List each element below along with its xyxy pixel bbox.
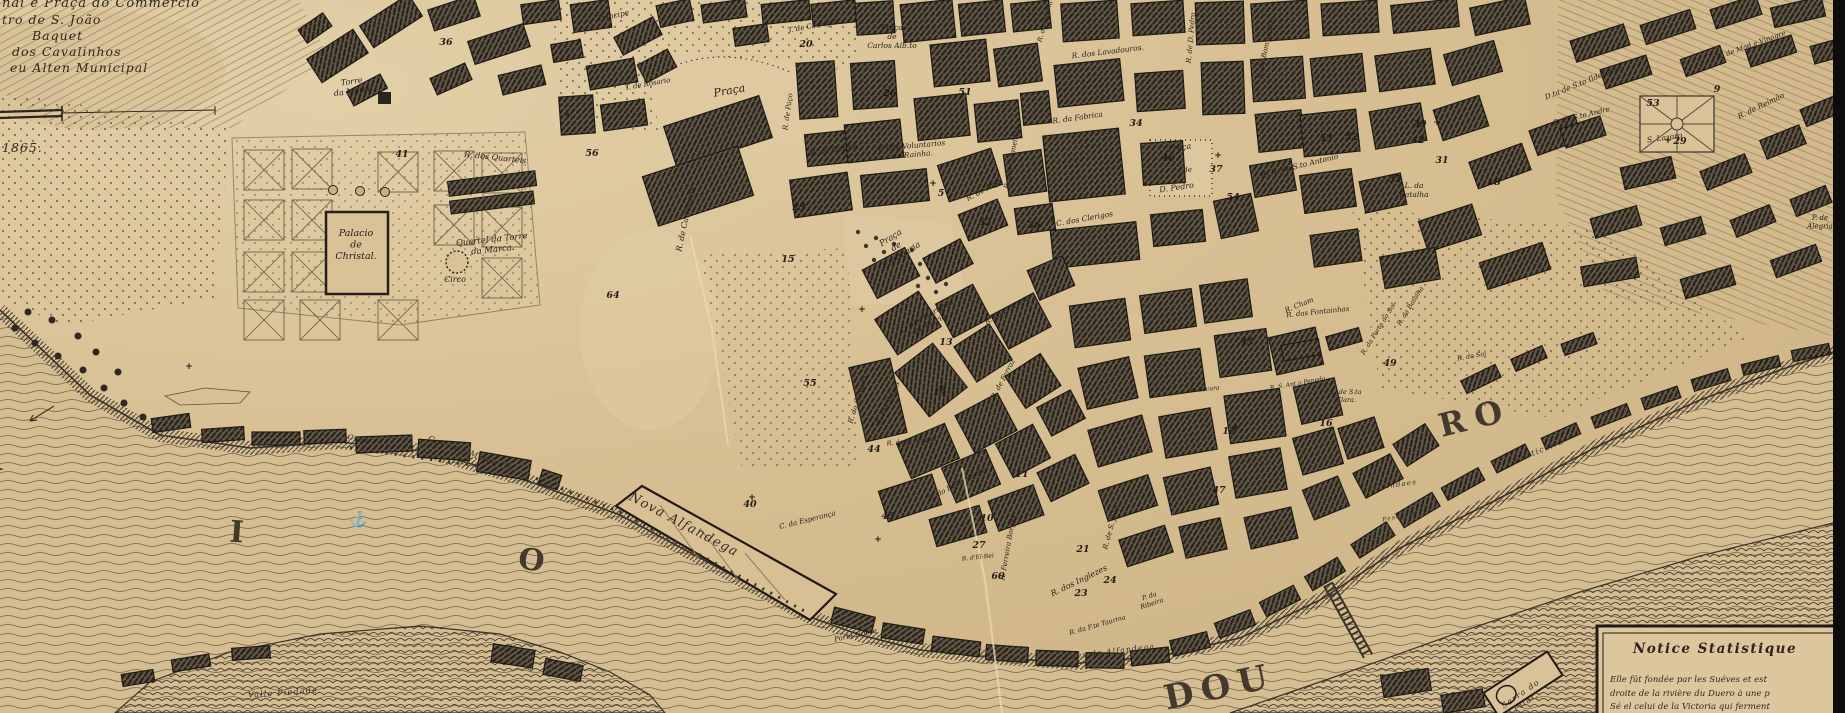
garden-pond	[356, 187, 365, 196]
block-number: 41	[395, 149, 408, 160]
city-block	[202, 427, 245, 443]
city-block	[1054, 59, 1124, 108]
church-cross-icon: +	[1433, 118, 1441, 128]
church-cross-icon: +	[564, 111, 572, 121]
church-cross-icon: +	[858, 305, 866, 315]
tree-blob	[93, 349, 100, 356]
city-block	[252, 432, 300, 445]
historic-map-of-porto: ++++++++++++ RIODOURO⚓ Torreda MarcaPala…	[0, 0, 1845, 713]
city-block	[1375, 48, 1435, 91]
tree-dot	[926, 276, 930, 280]
city-block	[1310, 53, 1366, 96]
block-number: 42	[1411, 135, 1425, 146]
torre-da-marca-building	[378, 92, 391, 104]
block-number: 51	[958, 87, 971, 98]
block-number: 54	[1226, 192, 1239, 203]
block-number: 11	[1015, 469, 1028, 480]
city-block	[861, 169, 930, 208]
notice-line: Sé el celui de la Victoria qui ferment	[1610, 701, 1770, 712]
river-name-letter: I	[228, 515, 244, 551]
map-year: 1865.	[2, 140, 43, 155]
city-block	[1214, 329, 1271, 378]
tree-blob	[80, 367, 87, 374]
block-number: 55	[803, 378, 817, 389]
tree-dot	[916, 284, 920, 288]
city-block	[986, 645, 1029, 663]
city-block	[796, 61, 838, 120]
city-block	[1069, 298, 1130, 347]
city-block	[1200, 279, 1253, 323]
block-number: 46	[1161, 153, 1175, 164]
block-number: 27	[971, 540, 986, 551]
tree-dot	[872, 258, 876, 262]
block-number: 35	[1388, 174, 1402, 185]
city-block	[1310, 229, 1362, 267]
city-block	[1229, 448, 1288, 498]
garden-pond	[381, 188, 390, 197]
tree-dot	[944, 282, 948, 286]
city-block	[1020, 91, 1051, 126]
city-block	[1195, 1, 1244, 45]
city-block	[1131, 0, 1185, 36]
block-number: 64	[606, 290, 619, 301]
tree-blob	[12, 325, 19, 332]
tree-dot	[934, 290, 938, 294]
city-block	[994, 43, 1043, 87]
block-number: 49	[1383, 358, 1397, 369]
city-block	[761, 0, 811, 24]
legend-line: eu Alten Municipal	[10, 60, 148, 75]
block-number: 43	[881, 511, 895, 522]
notice-line: Elle fût fondée par les Suéves et est	[1609, 674, 1768, 685]
legend-line: tro de S. João	[2, 12, 101, 27]
block-number: 60	[991, 571, 1005, 582]
city-block	[930, 39, 990, 87]
tree-blob	[55, 353, 62, 360]
tree-blob	[25, 309, 32, 316]
city-block	[304, 429, 346, 443]
city-block	[1061, 0, 1120, 42]
city-block	[1043, 128, 1125, 202]
tree-blob	[140, 414, 147, 421]
block-number: 5	[938, 188, 945, 199]
block-number: 37	[1209, 164, 1223, 175]
garden-pond	[329, 186, 338, 195]
city-block	[958, 0, 1005, 36]
tree-blob	[121, 400, 128, 407]
block-number: 18	[1487, 177, 1501, 188]
block-number: 23	[791, 202, 806, 213]
notice-line: droite de la rivière du Duero à une p	[1610, 688, 1770, 699]
scan-edge-strip	[1833, 0, 1845, 713]
block-number: 53	[1319, 133, 1333, 144]
tree-dot	[874, 236, 878, 240]
block-number: 39	[1413, 119, 1427, 130]
block-number: 10	[980, 513, 994, 524]
tree-dot	[882, 250, 886, 254]
block-number: 53	[1646, 98, 1660, 109]
block-number: 14	[933, 387, 946, 398]
legend-line: dos Cavalinhos	[12, 44, 121, 59]
block-number: 52	[978, 217, 992, 228]
map-canvas: ++++++++++++ RIODOURO⚓ Torreda MarcaPala…	[0, 0, 1845, 713]
tree-dot	[864, 244, 868, 248]
city-block	[1159, 408, 1218, 458]
city-block	[733, 24, 769, 47]
city-block	[850, 61, 897, 110]
city-block	[914, 93, 970, 140]
block-number: 9	[1714, 84, 1721, 95]
tree-blob	[101, 385, 108, 392]
city-block	[1201, 61, 1245, 114]
city-block	[900, 0, 956, 43]
church-cross-icon: +	[929, 179, 937, 189]
legend-line: Baquet	[31, 28, 83, 43]
city-block	[1321, 0, 1379, 36]
city-block	[1140, 289, 1197, 334]
map-label: Circo	[444, 275, 466, 284]
church-cross-icon: +	[185, 362, 193, 372]
block-number: 15	[781, 254, 795, 265]
tree-blob	[115, 369, 122, 376]
tree-blob	[49, 317, 56, 324]
block-number: 26	[882, 88, 897, 99]
river-name-letter: O	[516, 541, 547, 579]
block-number: 47	[1212, 485, 1226, 496]
city-block	[1255, 110, 1305, 153]
block-number: 21	[1075, 544, 1089, 555]
city-block	[1300, 169, 1357, 214]
block-number: 44	[867, 444, 880, 455]
block-number: 34	[1129, 118, 1142, 129]
block-number: 16	[1319, 418, 1333, 429]
church-cross-icon: +	[874, 535, 882, 545]
tree-dot	[856, 230, 860, 234]
block-number: 24	[1102, 575, 1116, 586]
tree-blob	[32, 340, 39, 347]
notice-title: Notice Statistique	[1632, 641, 1797, 657]
block-number: 56	[585, 148, 599, 159]
block-number: 36	[1027, 220, 1041, 231]
block-number: 12	[1222, 426, 1236, 437]
block-number: 40	[743, 499, 757, 510]
notice-statistique-box: Notice Statistique Elle fût fondée par l…	[1597, 626, 1845, 713]
block-number: 52	[1345, 132, 1359, 143]
block-number: 13	[939, 337, 953, 348]
block-number: 36	[439, 37, 453, 48]
city-block	[1251, 0, 1310, 42]
circo-ring	[446, 251, 468, 273]
anchor-icon: ⚓	[348, 508, 370, 529]
map-label: de	[1183, 165, 1193, 174]
city-block	[600, 99, 647, 131]
city-block	[1150, 209, 1205, 246]
church-cross-icon: +	[1214, 151, 1222, 161]
tree-dot	[918, 262, 922, 266]
city-block	[1135, 70, 1186, 111]
block-number: 20	[798, 39, 813, 50]
block-number: 31	[1435, 155, 1448, 166]
tree-blob	[75, 333, 82, 340]
city-block	[232, 646, 271, 661]
block-number: 23	[1073, 588, 1088, 599]
block-number: 29	[1672, 136, 1687, 147]
legend-line: nal e Praça do Commercio	[2, 0, 200, 11]
block-number: 45	[1240, 337, 1254, 348]
